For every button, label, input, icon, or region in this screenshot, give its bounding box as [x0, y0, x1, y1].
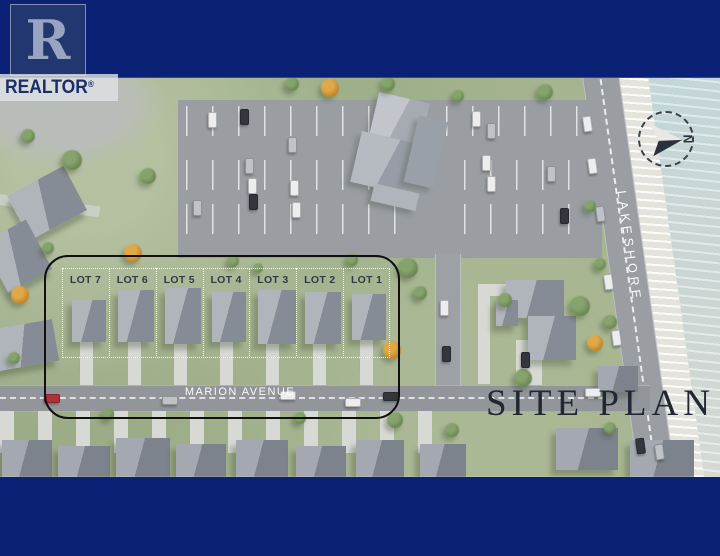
context-house	[356, 440, 404, 477]
tree	[445, 423, 459, 437]
car	[472, 111, 481, 127]
autumn-tree	[587, 335, 603, 351]
lot-label-2: LOT 2	[296, 274, 343, 286]
lot-house	[165, 288, 201, 344]
tree	[594, 258, 606, 270]
car	[440, 300, 449, 316]
lot-house	[72, 300, 106, 342]
tree	[398, 258, 418, 278]
tree	[381, 78, 395, 91]
car	[521, 352, 530, 368]
car	[193, 200, 202, 216]
site-plan-rendering: LAKESHORE	[0, 78, 720, 477]
context-house	[556, 428, 618, 470]
car	[603, 273, 614, 290]
compass-rose: N	[638, 111, 694, 167]
realtor-wordmark: REALTOR®	[5, 77, 94, 99]
car	[482, 155, 491, 171]
car	[582, 115, 593, 132]
registered-mark: ®	[88, 79, 94, 89]
car	[547, 166, 556, 182]
tree	[62, 150, 82, 170]
lot-house	[258, 290, 296, 344]
autumn-tree	[321, 79, 339, 97]
tree	[285, 78, 299, 91]
context-house	[2, 440, 52, 477]
realtor-logo: R	[10, 4, 86, 76]
lot-label-5: LOT 5	[156, 274, 203, 286]
car	[611, 329, 622, 346]
car	[487, 123, 496, 139]
context-house	[528, 316, 576, 360]
autumn-tree	[11, 286, 29, 304]
realtor-r-icon: R	[26, 13, 71, 67]
car	[292, 202, 301, 218]
lot-house	[352, 294, 386, 340]
car	[290, 180, 299, 196]
tree	[584, 200, 596, 212]
lot-house	[118, 290, 154, 342]
presentation-frame: LAKESHORE	[0, 0, 720, 556]
lot-label-1: LOT 1	[343, 274, 390, 286]
tree	[8, 352, 20, 364]
car	[442, 346, 451, 362]
car	[248, 178, 257, 194]
lot-label-6: LOT 6	[109, 274, 156, 286]
page-title: SITE PLAN	[486, 382, 706, 425]
context-house	[296, 446, 346, 477]
tree	[413, 286, 427, 300]
lot-house	[212, 292, 246, 342]
tree	[452, 90, 464, 102]
realtor-wordmark-band: REALTOR®	[0, 74, 118, 101]
tree	[537, 84, 553, 100]
car	[487, 176, 496, 192]
car	[208, 112, 217, 128]
tree	[498, 293, 512, 307]
lot-label-3: LOT 3	[249, 274, 296, 286]
car	[595, 205, 606, 222]
tree	[570, 296, 590, 316]
compass-north-label: N	[680, 135, 694, 144]
car	[587, 157, 598, 174]
realtor-watermark: R REALTOR®	[0, 0, 118, 101]
context-house	[420, 444, 466, 477]
car	[240, 109, 249, 125]
context-house	[58, 446, 110, 477]
car	[560, 208, 569, 224]
tree	[42, 242, 54, 254]
car	[245, 158, 254, 174]
tree	[21, 129, 35, 143]
realtor-text: REALTOR	[5, 77, 88, 98]
lot-label-4: LOT 4	[203, 274, 250, 286]
tree	[603, 315, 617, 329]
car	[288, 137, 297, 153]
lot-label-7: LOT 7	[62, 274, 109, 286]
car	[249, 194, 258, 210]
tree	[140, 168, 156, 184]
lot-house	[305, 292, 341, 344]
context-house	[116, 438, 170, 477]
context-house	[176, 444, 226, 477]
context-house	[236, 440, 288, 477]
